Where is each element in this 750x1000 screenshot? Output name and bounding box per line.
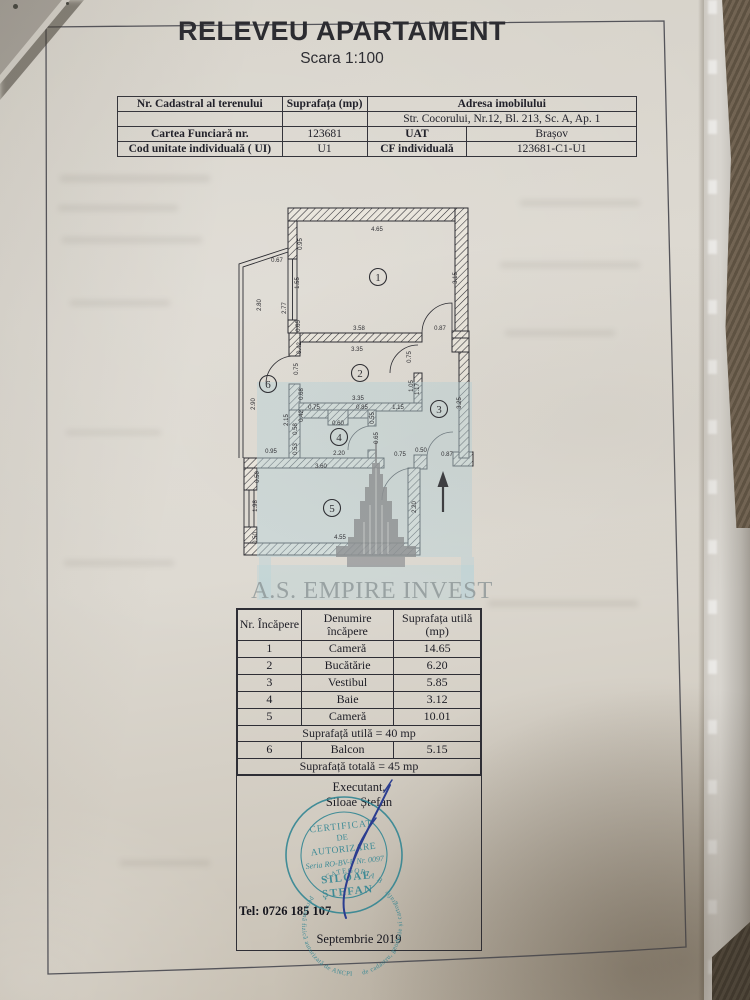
dimension-label: 0.42: [299, 410, 305, 422]
dimension-label: 0.58: [293, 423, 299, 435]
info-cell: 123681-C1-U1: [467, 142, 637, 157]
dimension-label: 3.35: [352, 396, 364, 402]
table-row: 4Baie3.12: [238, 692, 481, 709]
header-line: (mp): [394, 625, 480, 638]
dimension-label: 0.65: [374, 432, 380, 444]
table-cell: 1: [238, 641, 302, 658]
dimension-label: 1.17: [415, 383, 421, 395]
page-title: RELEVEU APARTAMENT: [112, 16, 572, 47]
info-cell: Brașov: [467, 127, 637, 142]
dimension-label: 0.75: [394, 452, 406, 458]
table-cell: Vestibul: [301, 675, 394, 692]
col-header-suprafata: Suprafața utilă (mp): [394, 610, 481, 641]
dimension-label: 0.87: [434, 326, 446, 332]
table-cell: 4: [238, 692, 302, 709]
dimension-label: 0.87: [441, 452, 453, 458]
info-cell: U1: [282, 142, 367, 157]
watermark-text: A.S. EMPIRE INVEST: [251, 577, 493, 604]
info-cell: Nr. Cadastral al terenului: [118, 97, 283, 112]
dimension-label: 2.20: [412, 501, 418, 513]
table-cell: 10.01: [394, 709, 481, 726]
dimension-label: 0.85: [356, 405, 368, 411]
dimension-label: 1.55: [295, 277, 301, 289]
rooms-table: Nr. Încăpere Denumire încăpere Suprafața…: [237, 609, 481, 775]
table-summary-row: Suprafață utilă = 40 mp: [238, 726, 481, 742]
room-number: 2: [357, 368, 363, 380]
dimension-label: 0.68: [299, 388, 305, 400]
dimension-label: 3.60: [315, 464, 327, 470]
table-cell: 5: [238, 709, 302, 726]
room-number: 6: [265, 379, 271, 391]
dimension-label: 0.55: [370, 412, 376, 424]
dimension-label: 0.75: [308, 405, 320, 411]
info-cell: UAT: [367, 127, 467, 142]
dimension-label: 3.35: [351, 347, 363, 353]
dimension-label: 2.15: [284, 414, 290, 426]
table-cell: 14.65: [394, 641, 481, 658]
info-cell: [118, 112, 283, 127]
table-row: 5Cameră10.01: [238, 709, 481, 726]
table-cell: Balcon: [301, 742, 394, 759]
info-cell: 123681: [282, 127, 367, 142]
table-cell: Cameră: [301, 709, 394, 726]
dimension-label: 0.75: [294, 363, 300, 375]
table-cell: Bucătărie: [301, 658, 394, 675]
col-header-nr: Nr. Încăpere: [238, 610, 302, 641]
table-cell: Baie: [301, 692, 394, 709]
scale-label: Scara 1:100: [112, 50, 572, 68]
dimension-label: 2.20: [333, 451, 345, 457]
dimension-label: 0.42: [297, 342, 303, 354]
dimension-label: 0.60: [332, 421, 344, 427]
room-number: 5: [329, 503, 335, 515]
table-cell: 3.12: [394, 692, 481, 709]
dimension-label: 0.50: [255, 471, 261, 483]
col-header-denumire: Denumire încăpere: [301, 610, 394, 641]
dimension-label: 2.77: [282, 302, 288, 314]
dimension-label: 0.53: [293, 443, 299, 455]
table-row: 3Vestibul5.85: [238, 675, 481, 692]
info-cell: CF individuală: [367, 142, 467, 157]
table-cell: 6.20: [394, 658, 481, 675]
table-cell: Cameră: [301, 641, 394, 658]
dimension-label: 3.15: [453, 272, 459, 284]
dimension-label: 4.55: [334, 535, 346, 541]
dimension-label: 4.65: [371, 227, 383, 233]
room-number: 1: [375, 272, 381, 284]
dimension-label: 0.95: [298, 238, 304, 250]
summary-cell: Suprafață utilă = 40 mp: [238, 726, 481, 742]
table-cell: 3: [238, 675, 302, 692]
cadastral-info-table: Nr. Cadastral al terenului Suprafața (mp…: [117, 96, 637, 157]
photographed-document: RELEVEU APARTAMENT Scara 1:100 Nr. Cadas…: [0, 0, 750, 1000]
paper-speck: [13, 4, 18, 9]
table-row: 1Cameră14.65: [238, 641, 481, 658]
info-cell: Cod unitate individuală ( UI): [118, 142, 283, 157]
dimension-label: 3.58: [353, 326, 365, 332]
table-row: 2Bucătărie6.20: [238, 658, 481, 675]
info-cell: Str. Cocorului, Nr.12, Bl. 213, Sc. A, A…: [367, 112, 636, 127]
floor-plan: A.S. EMPIRE INVEST 4.650.670.951.550.652…: [232, 200, 480, 610]
info-cell: [282, 112, 367, 127]
table-row: 6Balcon5.15: [238, 742, 481, 759]
dimension-label: 2.90: [251, 398, 257, 410]
room-number: 3: [436, 404, 442, 416]
dimension-label: 0.50: [253, 532, 259, 544]
info-cell: Cartea Funciară nr.: [118, 127, 283, 142]
dimension-label: 0.95: [265, 449, 277, 455]
dimension-label: 1.98: [253, 500, 259, 512]
info-cell: Suprafața (mp): [282, 97, 367, 112]
dimension-label: 2.80: [257, 299, 263, 311]
dimension-label: 0.65: [296, 320, 302, 332]
table-cell: 5.15: [394, 742, 481, 759]
dimension-label: 0.50: [415, 448, 427, 454]
table-cell: 6: [238, 742, 302, 759]
dimension-label: 0.75: [407, 351, 413, 363]
paper-speck: [66, 2, 69, 5]
stamp-line: DE: [336, 832, 348, 843]
authorization-stamp: persoană fizică autorizată de ANCPI de c…: [235, 770, 485, 945]
dimension-label: 1.15: [392, 405, 404, 411]
info-cell: Adresa imobilului: [367, 97, 636, 112]
dimension-label: 3.25: [457, 397, 463, 409]
dimension-label: 0.67: [271, 258, 283, 264]
table-cell: 2: [238, 658, 302, 675]
room-number: 4: [336, 432, 342, 444]
table-cell: 5.85: [394, 675, 481, 692]
header-line: încăpere: [302, 625, 394, 638]
